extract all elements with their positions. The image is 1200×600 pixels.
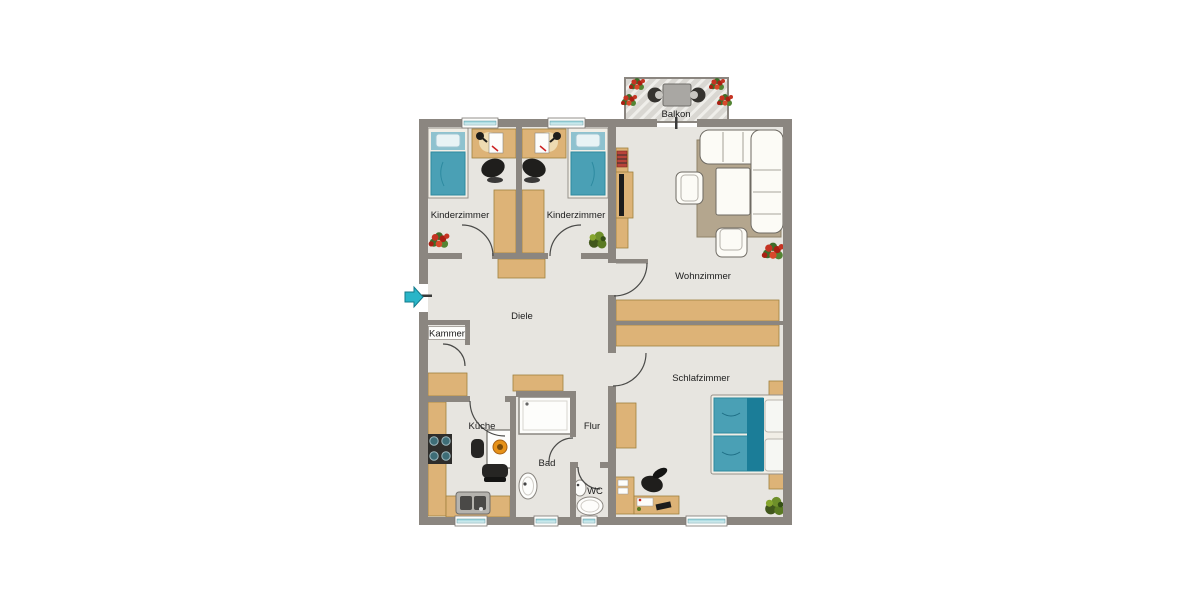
wall-kammer [428, 320, 470, 325]
wall-kids-bottom [581, 253, 610, 259]
bedroom-wardrobe [616, 403, 636, 448]
wall-bath-top [516, 391, 576, 397]
pillow [436, 134, 460, 147]
wall-bath-right [570, 391, 576, 437]
paper [535, 133, 549, 153]
armchair [676, 172, 703, 204]
wall-left [419, 119, 428, 284]
window [581, 516, 597, 526]
paper [618, 488, 628, 494]
burner [442, 437, 450, 445]
chair-back [484, 477, 506, 482]
wall-kids-bottom [492, 253, 548, 259]
wall-kids-divider [516, 127, 522, 253]
bedroom-wardrobe [616, 325, 779, 346]
wall-top [697, 119, 792, 127]
wardrobe [522, 190, 544, 253]
wall-top [419, 119, 657, 127]
room-label-balkon: Balkon [661, 109, 690, 120]
tv [619, 174, 624, 216]
bed-blanket [571, 152, 605, 195]
window [462, 118, 498, 128]
tv-lowboard [616, 172, 633, 218]
faucet [577, 484, 580, 487]
room-label-schlafzimmer: Schlafzimmer [672, 373, 730, 384]
wall-kitchen [428, 396, 470, 402]
window [534, 516, 558, 526]
room-label-wohnzimmer: Wohnzimmer [675, 271, 731, 282]
coffee-table [716, 168, 750, 215]
wall-right [783, 119, 792, 525]
media-shelf [617, 151, 627, 167]
wall-center [608, 295, 616, 353]
bed-runner [747, 398, 764, 471]
room-label-bad: Bad [539, 458, 556, 469]
pillow [765, 439, 786, 471]
wall-left [419, 312, 428, 525]
office-chair-base [524, 177, 540, 183]
wall-center [608, 127, 616, 263]
sofa [751, 130, 783, 233]
pillow [576, 134, 600, 147]
hall-sideboard [513, 375, 563, 391]
wall-wc-left [570, 462, 576, 517]
window [548, 118, 585, 128]
living-room-sideboard [616, 300, 779, 321]
wardrobe [494, 190, 516, 253]
room-label-wc: WC [587, 486, 603, 497]
room-label-kinderzimmer-links: Kinderzimmer [431, 210, 490, 221]
wall-stub [616, 259, 648, 264]
wall-living-bedroom [616, 321, 783, 325]
entrance-arrow-icon [405, 287, 423, 307]
chair [482, 464, 508, 478]
shower-drain [525, 402, 528, 405]
room-label-kinderzimmer-rechts: Kinderzimmer [547, 210, 606, 221]
room-label-kueche: Küche [469, 421, 496, 432]
room-label-diele: Diele [511, 311, 533, 322]
pillow [765, 400, 786, 432]
burner [430, 452, 438, 460]
floorplan-canvas: Balkon Kinderzimmer Kinderzimmer Wohnzim… [0, 0, 1200, 600]
hall-sideboard [498, 259, 545, 278]
paper [618, 480, 628, 486]
wall-kitchen-right [510, 396, 516, 517]
double-bed [711, 395, 789, 474]
balcony-table [663, 84, 691, 106]
window [686, 516, 727, 526]
bed-blanket [431, 152, 465, 195]
wall-kids-bottom [428, 253, 462, 259]
floorplan-svg: Balkon Kinderzimmer Kinderzimmer Wohnzim… [0, 0, 1200, 600]
faucet [523, 482, 526, 485]
room-label-flur: Flur [584, 421, 600, 432]
sink-basin [460, 496, 472, 510]
wall-center [608, 386, 616, 517]
burner [430, 437, 438, 445]
office-chair-base [487, 177, 503, 183]
burner [442, 452, 450, 460]
wall-wc-top [570, 462, 578, 468]
hall-wardrobe [428, 373, 467, 396]
wall-wc-top [600, 462, 608, 468]
chair [471, 439, 484, 458]
room-label-kammer: Kammer [429, 329, 465, 340]
window [455, 516, 487, 526]
plant-small [637, 507, 641, 511]
faucet [479, 507, 483, 511]
